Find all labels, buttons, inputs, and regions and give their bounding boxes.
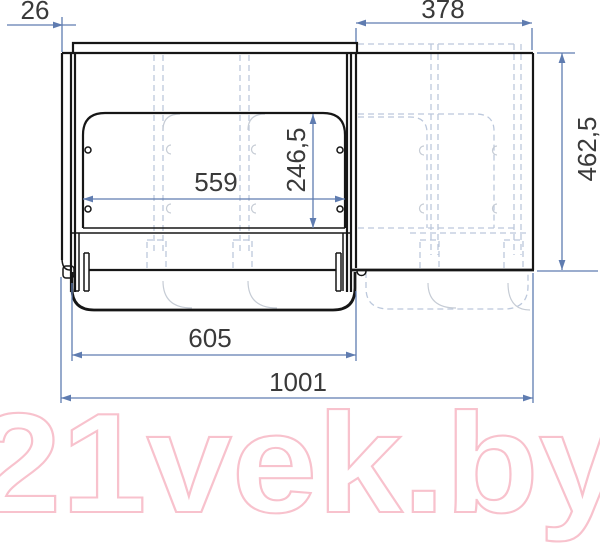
- panel-hole-tl: [85, 147, 91, 153]
- ghost-foot-left-1: [147, 240, 166, 270]
- ghost-foot-left-2: [233, 240, 252, 270]
- dim-378-arrow-left: [356, 20, 366, 27]
- slide-arc-bottom-left-2: [248, 281, 277, 308]
- slide-arc-top-left: [163, 114, 180, 130]
- dim-378-line: [356, 23, 532, 50]
- ghost-tray: [366, 272, 528, 309]
- ghost-rails-left-section: [154, 55, 249, 255]
- watermark-text: 21vek.by: [0, 384, 600, 543]
- dim-26-label: 26: [21, 0, 50, 25]
- dim-605-arrow-left: [72, 352, 82, 359]
- drawer-tray: [72, 272, 355, 310]
- panel-rails: [71, 228, 351, 233]
- dim-246-arrow-bottom: [310, 218, 317, 228]
- dim-246-label: 246,5: [281, 127, 311, 192]
- ghost-rails-right-section: [431, 44, 521, 255]
- technical-drawing-svg: 26 378 462,5 559 246,5 605 1001 21vek.by: [0, 0, 600, 543]
- dim-462-label: 462,5: [572, 116, 600, 181]
- ghost-rail-horizontals: [358, 228, 528, 233]
- dim-246-arrow-top: [310, 114, 317, 124]
- panel-hole-bl: [85, 206, 91, 212]
- panel-hole-br: [337, 206, 343, 212]
- ghost-panel-outline: [358, 114, 494, 228]
- slide-arc-top-mid: [248, 114, 265, 130]
- ghost-foot-right-1: [420, 240, 439, 270]
- dim-559-label: 559: [194, 167, 237, 197]
- dim-462-arrow-bottom: [559, 260, 566, 270]
- drawing-page: 26 378 462,5 559 246,5 605 1001 21vek.by: [0, 0, 600, 543]
- slide-arc-bottom-right-1: [428, 283, 456, 308]
- dim-559-arrow-right: [335, 196, 345, 203]
- dim-378-arrow-right: [522, 20, 532, 27]
- bracket-right: [336, 233, 343, 291]
- divider-wall: [347, 53, 356, 292]
- dimensions: 26 378 462,5 559 246,5 605 1001: [7, 0, 600, 403]
- stop-hook: [357, 271, 366, 276]
- panel-hole-tr: [337, 147, 343, 153]
- slide-arc-bottom-left-1: [163, 281, 192, 308]
- dim-462-arrow-top: [559, 53, 566, 63]
- dim-605-label: 605: [188, 323, 231, 353]
- bracket-left: [75, 233, 89, 291]
- dim-378-label: 378: [421, 0, 464, 24]
- top-panel: [73, 43, 357, 53]
- left-side-wall: [62, 53, 75, 292]
- dim-605-arrow-right: [346, 352, 356, 359]
- dim-559-arrow-left: [83, 196, 93, 203]
